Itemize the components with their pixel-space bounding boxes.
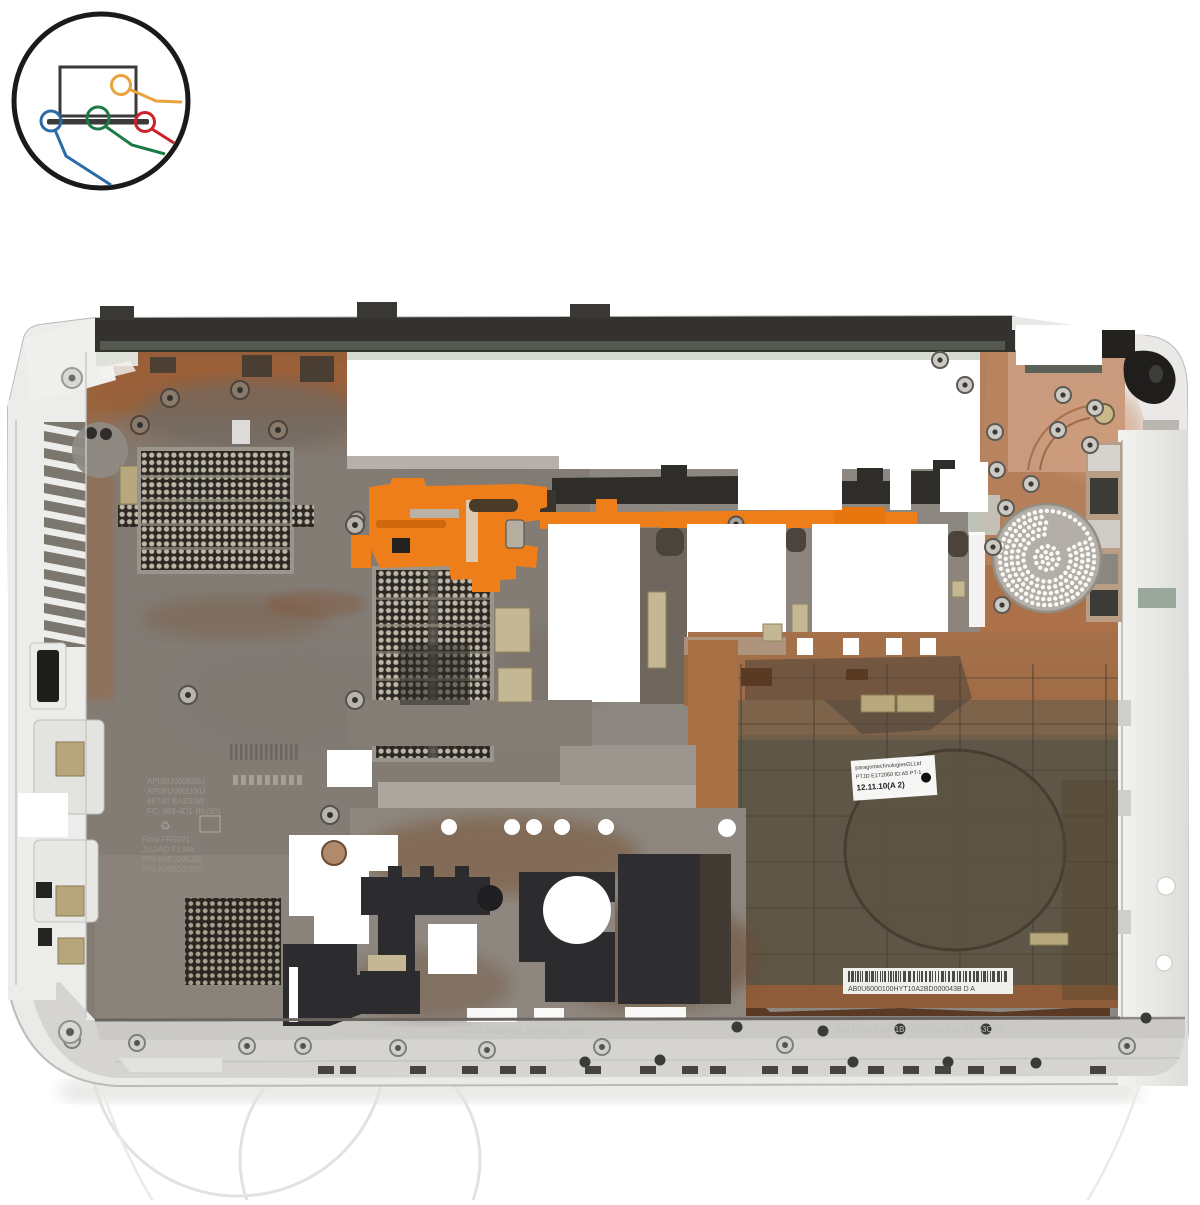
svg-text:P/N:A051000J00: P/N:A051000J00 xyxy=(142,855,203,864)
svg-text:♻: ♻ xyxy=(160,819,171,833)
svg-text:FC: 683-4D1-BK(80): FC: 683-4D1-BK(80) xyxy=(147,807,221,816)
svg-text:66T40 BAS30W: 66T40 BAS30W xyxy=(147,797,205,806)
svg-text:P/N:A009000100: P/N:A009000100 xyxy=(142,865,203,874)
svg-text:JUJIAO F1346: JUJIAO F1346 xyxy=(142,845,195,854)
svg-text:Foxy FR5021: Foxy FR5021 xyxy=(142,835,191,844)
svg-text:AP0BU000U00J: AP0BU000U00J xyxy=(147,787,205,796)
svg-text:S/N 5CG3 5100 1B3W AT 32N3 3: S/N 5CG3 5100 1B3W AT 32N3 3B 3 E 53C 7A xyxy=(836,1025,1005,1034)
svg-text:AB0U6000100HYT10A2BD000043B D: AB0U6000100HYT10A2BD000043B D A xyxy=(848,986,975,993)
svg-text:AP0BU000E00J: AP0BU000E00J xyxy=(147,777,205,786)
svg-text:FR-4D1 RK80 W3L DR-51RE 123W: FR-4D1 RK80 W3L DR-51RE 123W xyxy=(455,1027,584,1036)
